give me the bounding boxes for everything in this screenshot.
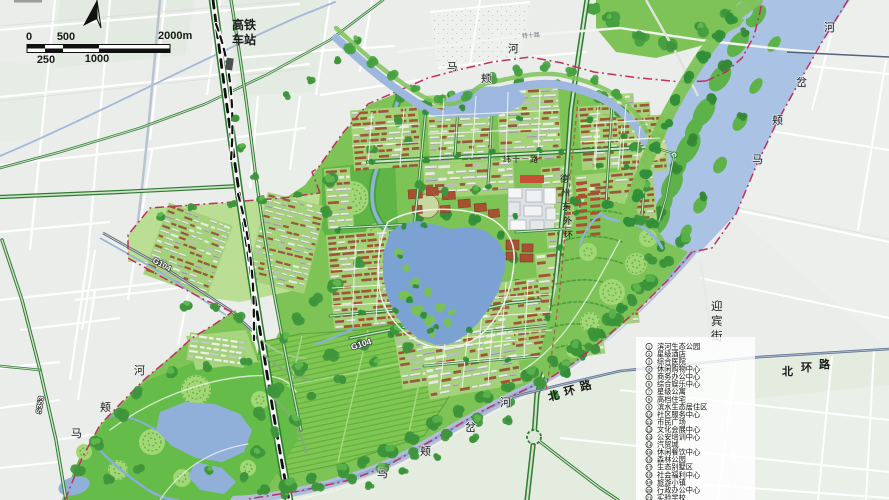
svg-text:河: 河	[824, 21, 835, 34]
svg-text:马: 马	[752, 153, 763, 166]
svg-text:州: 州	[561, 188, 570, 198]
svg-text:10: 10	[646, 412, 652, 417]
svg-text:颊: 颊	[481, 72, 492, 85]
svg-text:0: 0	[26, 31, 32, 43]
svg-text:1: 1	[648, 344, 651, 349]
svg-text:14: 14	[646, 443, 652, 448]
svg-text:17: 17	[646, 465, 652, 470]
svg-text:20: 20	[646, 488, 652, 493]
svg-text:19: 19	[646, 480, 652, 485]
svg-text:18: 18	[646, 473, 652, 478]
svg-text:250: 250	[37, 54, 55, 66]
svg-text:2000m: 2000m	[158, 30, 192, 42]
svg-text:实验学校: 实验学校	[657, 493, 686, 500]
svg-text:环: 环	[801, 361, 812, 374]
svg-text:4: 4	[648, 367, 651, 372]
svg-text:路: 路	[819, 357, 831, 371]
svg-text:河: 河	[134, 364, 145, 377]
svg-text:颊: 颊	[100, 401, 111, 414]
svg-text:车站: 车站	[232, 32, 256, 47]
svg-text:3: 3	[648, 359, 651, 364]
svg-text:颊: 颊	[420, 445, 431, 458]
svg-text:德: 德	[560, 173, 569, 184]
svg-text:颊: 颊	[772, 114, 783, 127]
svg-text:6: 6	[648, 382, 651, 387]
svg-text:东: 东	[562, 201, 571, 212]
svg-text:岔: 岔	[465, 421, 476, 434]
svg-text:7: 7	[648, 390, 651, 395]
svg-text:宾: 宾	[711, 314, 723, 328]
svg-text:8: 8	[648, 397, 651, 402]
svg-text:马: 马	[447, 61, 458, 73]
svg-text:15: 15	[646, 450, 652, 455]
svg-text:9: 9	[648, 405, 651, 410]
svg-text:岔: 岔	[796, 76, 807, 89]
svg-text:高铁: 高铁	[232, 17, 256, 32]
svg-text:11: 11	[647, 420, 652, 425]
svg-text:500: 500	[57, 31, 75, 43]
svg-text:21: 21	[646, 495, 652, 500]
svg-text:16: 16	[646, 458, 652, 463]
svg-text:1000: 1000	[85, 53, 109, 65]
svg-text:12: 12	[646, 427, 652, 432]
svg-text:马: 马	[71, 427, 82, 440]
svg-text:2: 2	[648, 352, 651, 357]
svg-text:迎: 迎	[711, 300, 723, 313]
svg-text:外: 外	[563, 215, 572, 226]
svg-text:环: 环	[564, 230, 573, 240]
svg-text:纬十一路: 纬十一路	[503, 154, 539, 164]
svg-text:13: 13	[646, 435, 652, 440]
svg-text:河: 河	[500, 396, 511, 409]
svg-text:马: 马	[377, 467, 388, 480]
svg-text:5: 5	[648, 375, 651, 380]
svg-text:北: 北	[782, 364, 793, 378]
svg-text:河: 河	[508, 43, 519, 55]
